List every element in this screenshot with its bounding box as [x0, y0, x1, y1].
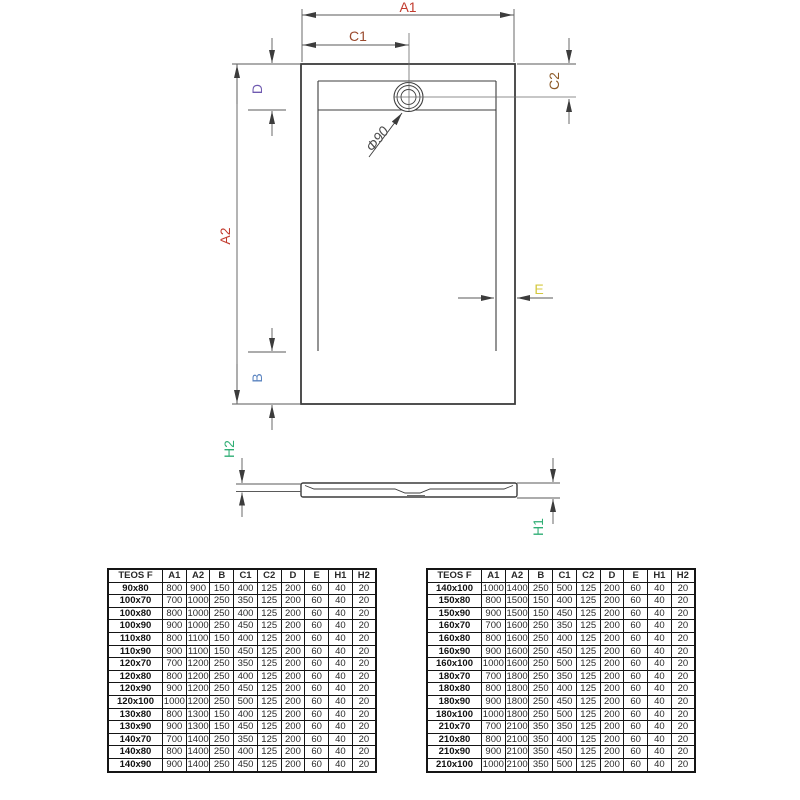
- size-cell: 150x80: [427, 595, 482, 608]
- dimension-cell: 500: [553, 582, 577, 595]
- size-cell: 210x90: [427, 746, 482, 759]
- dimension-cell: 60: [305, 746, 329, 759]
- dimension-cell: 800: [482, 595, 506, 608]
- shower-tray-technical-drawing: A1 C1 C2 D A2 B E H2 H1 Φ90: [0, 0, 800, 560]
- size-cell: 150x90: [427, 607, 482, 620]
- dimension-cell: 200: [600, 595, 624, 608]
- table-row: 210x909002100350450125200604020: [427, 746, 695, 759]
- dimension-cell: 20: [352, 746, 376, 759]
- table-row: 110x909001100150450125200604020: [108, 645, 376, 658]
- dimension-cell: 20: [671, 733, 695, 746]
- size-cell: 100x80: [108, 607, 163, 620]
- size-cell: 160x100: [427, 658, 482, 671]
- size-cell: 110x90: [108, 645, 163, 658]
- dimension-cell: 450: [553, 746, 577, 759]
- table-row: 180x10010001800250500125200604020: [427, 708, 695, 721]
- dimension-cell: 60: [624, 746, 648, 759]
- column-header-a1: A1: [482, 569, 506, 582]
- dim-label-h1: H1: [530, 518, 546, 536]
- size-cell: 180x70: [427, 670, 482, 683]
- dimension-cell: 1100: [186, 632, 210, 645]
- dimension-cell: 20: [671, 695, 695, 708]
- dimension-cell: 1000: [482, 582, 506, 595]
- dimension-cell: 450: [553, 607, 577, 620]
- dimension-cell: 450: [234, 620, 258, 633]
- dimension-cell: 60: [305, 758, 329, 771]
- dimension-cell: 1000: [482, 758, 506, 771]
- dimension-cell: 1600: [505, 658, 529, 671]
- table-row: 100x909001000250450125200604020: [108, 620, 376, 633]
- size-cell: 160x90: [427, 645, 482, 658]
- dimension-cell: 40: [648, 708, 672, 721]
- dimension-cell: 40: [329, 721, 353, 734]
- column-header-c2: C2: [576, 569, 600, 582]
- dimension-cell: 350: [553, 721, 577, 734]
- dimension-cell: 60: [624, 595, 648, 608]
- dimension-cell: 60: [624, 582, 648, 595]
- dimension-cell: 60: [305, 708, 329, 721]
- size-cell: 130x90: [108, 721, 163, 734]
- dimension-cell: 60: [624, 632, 648, 645]
- dimension-cell: 1600: [505, 620, 529, 633]
- dimension-cell: 60: [305, 595, 329, 608]
- dimension-cell: 200: [281, 620, 305, 633]
- dimension-cell: 450: [234, 721, 258, 734]
- dimension-cell: 200: [281, 746, 305, 759]
- dimension-cell: 500: [553, 658, 577, 671]
- dimension-cell: 900: [482, 695, 506, 708]
- dimension-cell: 800: [163, 708, 187, 721]
- dimension-cell: 125: [257, 658, 281, 671]
- table-row: 160x909001600250450125200604020: [427, 645, 695, 658]
- dimension-cell: 200: [281, 645, 305, 658]
- table-row: 140x909001400250450125200604020: [108, 758, 376, 771]
- dimension-cell: 1000: [482, 658, 506, 671]
- size-cell: 130x80: [108, 708, 163, 721]
- size-cell: 180x90: [427, 695, 482, 708]
- table-row: 140x707001400250350125200604020: [108, 733, 376, 746]
- dimension-cell: 700: [482, 620, 506, 633]
- dimension-cell: 250: [529, 645, 553, 658]
- dimension-cell: 125: [576, 607, 600, 620]
- dimension-cell: 900: [163, 645, 187, 658]
- dimension-cell: 1600: [505, 645, 529, 658]
- dimension-cell: 60: [305, 683, 329, 696]
- dim-label-a2: A2: [217, 227, 233, 244]
- dimension-cell: 150: [210, 721, 234, 734]
- dimension-cell: 900: [163, 721, 187, 734]
- table-row: 120x909001200250450125200604020: [108, 683, 376, 696]
- dimension-cell: 250: [210, 758, 234, 771]
- dimension-cell: 200: [281, 658, 305, 671]
- size-cell: 210x80: [427, 733, 482, 746]
- dimension-cell: 60: [305, 721, 329, 734]
- dimension-cell: 200: [281, 721, 305, 734]
- dimension-cell: 20: [352, 721, 376, 734]
- dimension-cell: 125: [257, 746, 281, 759]
- size-cell: 120x90: [108, 683, 163, 696]
- dimension-cell: 1300: [186, 721, 210, 734]
- dimension-cell: 20: [352, 658, 376, 671]
- dimension-cell: 200: [281, 595, 305, 608]
- dimension-cell: 40: [329, 620, 353, 633]
- size-cell: 120x80: [108, 670, 163, 683]
- dimension-cell: 400: [553, 595, 577, 608]
- dimension-cell: 40: [329, 582, 353, 595]
- dimension-cell: 150: [210, 582, 234, 595]
- dimension-cell: 20: [671, 721, 695, 734]
- dimension-cell: 200: [600, 620, 624, 633]
- dimension-cell: 700: [163, 658, 187, 671]
- dim-label-c2: C2: [546, 72, 562, 90]
- dimension-cell: 60: [305, 607, 329, 620]
- dimension-cell: 125: [257, 708, 281, 721]
- dimension-cell: 125: [576, 582, 600, 595]
- dimension-cell: 40: [329, 632, 353, 645]
- dim-label-d: D: [249, 84, 265, 94]
- table-row: 100x707001000250350125200604020: [108, 595, 376, 608]
- dimension-cell: 1200: [186, 683, 210, 696]
- size-cell: 100x70: [108, 595, 163, 608]
- size-cell: 120x100: [108, 695, 163, 708]
- side-profile-outline: [301, 483, 517, 497]
- dimension-cell: 700: [163, 733, 187, 746]
- dimension-cell: 800: [482, 632, 506, 645]
- dimension-cell: 500: [553, 758, 577, 771]
- dimension-cell: 60: [624, 708, 648, 721]
- dimension-cell: 20: [352, 645, 376, 658]
- dimension-cell: 800: [163, 632, 187, 645]
- dimension-cell: 250: [210, 595, 234, 608]
- column-header-h2: H2: [352, 569, 376, 582]
- dimension-cell: 40: [648, 746, 672, 759]
- dimension-cell: 250: [529, 708, 553, 721]
- dimension-cell: 60: [624, 721, 648, 734]
- dimension-cell: 40: [648, 683, 672, 696]
- dimensions-table-right: TEOS FA1A2BC1C2DEH1H2140x100100014002505…: [426, 568, 696, 773]
- dimension-cell: 125: [257, 670, 281, 683]
- dimension-cell: 450: [234, 645, 258, 658]
- dimension-cell: 125: [576, 620, 600, 633]
- table-row: 130x909001300150450125200604020: [108, 721, 376, 734]
- dimension-cell: 20: [671, 670, 695, 683]
- dimension-cell: 250: [529, 658, 553, 671]
- table-row: 120x808001200250400125200604020: [108, 670, 376, 683]
- table-row: 210x707002100350350125200604020: [427, 721, 695, 734]
- dimension-cell: 150: [210, 632, 234, 645]
- dimension-cell: 800: [163, 746, 187, 759]
- dimension-cell: 1200: [186, 670, 210, 683]
- table-row: 180x909001800250450125200604020: [427, 695, 695, 708]
- dimension-cell: 250: [210, 695, 234, 708]
- dimension-cell: 20: [671, 758, 695, 771]
- dimension-cell: 2100: [505, 721, 529, 734]
- column-header-h2: H2: [671, 569, 695, 582]
- dimension-cell: 125: [576, 645, 600, 658]
- dimension-cell: 250: [210, 607, 234, 620]
- dimension-cell: 20: [671, 620, 695, 633]
- dimension-cell: 200: [600, 645, 624, 658]
- size-cell: 180x100: [427, 708, 482, 721]
- dimension-cell: 125: [257, 632, 281, 645]
- column-header-c1: C1: [553, 569, 577, 582]
- dimension-cell: 900: [163, 758, 187, 771]
- dimension-cell: 250: [210, 658, 234, 671]
- dimension-cell: 350: [234, 595, 258, 608]
- table-row: 160x808001600250400125200604020: [427, 632, 695, 645]
- dimension-cell: 60: [305, 582, 329, 595]
- dimension-cell: 20: [671, 746, 695, 759]
- table-row: 180x808001800250400125200604020: [427, 683, 695, 696]
- dimension-cell: 40: [648, 645, 672, 658]
- dimension-cell: 400: [553, 683, 577, 696]
- dimension-cell: 125: [257, 595, 281, 608]
- column-header-h1: H1: [329, 569, 353, 582]
- dimension-cell: 40: [648, 695, 672, 708]
- dimension-cell: 200: [600, 683, 624, 696]
- column-header-d: D: [281, 569, 305, 582]
- column-header-teos-f: TEOS F: [108, 569, 163, 582]
- table-row: 100x808001000250400125200604020: [108, 607, 376, 620]
- side-profile-inner-line: [305, 486, 513, 494]
- dim-label-a1: A1: [399, 0, 416, 15]
- dimension-cell: 20: [352, 582, 376, 595]
- size-cell: 210x70: [427, 721, 482, 734]
- dimension-cell: 800: [163, 607, 187, 620]
- table-row: 140x808001400250400125200604020: [108, 746, 376, 759]
- column-header-c1: C1: [234, 569, 258, 582]
- dimension-cell: 350: [234, 733, 258, 746]
- dimension-cell: 400: [234, 746, 258, 759]
- dimension-cell: 450: [553, 645, 577, 658]
- dimension-cell: 400: [234, 670, 258, 683]
- dimension-cell: 125: [576, 595, 600, 608]
- size-cell: 210x100: [427, 758, 482, 771]
- table-row: 210x808002100350400125200604020: [427, 733, 695, 746]
- dimension-cell: 400: [234, 607, 258, 620]
- dimension-cell: 250: [529, 670, 553, 683]
- size-cell: 160x70: [427, 620, 482, 633]
- dimension-cell: 200: [600, 746, 624, 759]
- dimension-cell: 250: [210, 733, 234, 746]
- dimension-cell: 40: [648, 620, 672, 633]
- dimension-cell: 125: [576, 708, 600, 721]
- dimension-cell: 60: [624, 683, 648, 696]
- table-row: 110x808001100150400125200604020: [108, 632, 376, 645]
- dimension-cell: 450: [553, 695, 577, 708]
- dimension-cell: 1500: [505, 595, 529, 608]
- dimension-cell: 250: [529, 632, 553, 645]
- dimension-cell: 900: [482, 645, 506, 658]
- dimension-cell: 250: [210, 620, 234, 633]
- dimension-cell: 60: [305, 632, 329, 645]
- dimension-cell: 60: [305, 620, 329, 633]
- column-header-b: B: [529, 569, 553, 582]
- dimension-cell: 60: [624, 620, 648, 633]
- dimension-cell: 1500: [505, 607, 529, 620]
- dimension-cell: 400: [553, 733, 577, 746]
- column-header-d: D: [600, 569, 624, 582]
- table-row: 210x10010002100350500125200604020: [427, 758, 695, 771]
- dimension-cell: 125: [257, 683, 281, 696]
- dimension-cell: 250: [529, 620, 553, 633]
- dimension-cell: 40: [329, 595, 353, 608]
- dimension-cell: 200: [281, 733, 305, 746]
- dimension-cell: 125: [576, 683, 600, 696]
- dimension-cell: 800: [482, 733, 506, 746]
- dimension-cell: 1400: [186, 746, 210, 759]
- dimension-cell: 150: [210, 645, 234, 658]
- dimension-cell: 450: [234, 758, 258, 771]
- column-header-e: E: [624, 569, 648, 582]
- dimension-cell: 2100: [505, 733, 529, 746]
- dimension-cell: 350: [529, 746, 553, 759]
- dimension-cell: 125: [257, 721, 281, 734]
- dimension-cell: 800: [163, 582, 187, 595]
- column-header-a2: A2: [186, 569, 210, 582]
- dimension-cell: 60: [624, 658, 648, 671]
- dimension-cell: 900: [186, 582, 210, 595]
- dimension-cell: 200: [600, 695, 624, 708]
- dimension-cell: 40: [329, 658, 353, 671]
- dimensions-table-left: TEOS FA1A2BC1C2DEH1H290x8080090015040012…: [107, 568, 377, 773]
- dimension-cell: 1400: [505, 582, 529, 595]
- dimension-cell: 250: [529, 683, 553, 696]
- dimension-cell: 200: [281, 670, 305, 683]
- dimension-cell: 40: [648, 758, 672, 771]
- dimension-cell: 200: [281, 582, 305, 595]
- dimension-cell: 150: [529, 607, 553, 620]
- dimension-cell: 60: [624, 645, 648, 658]
- dimension-cell: 350: [553, 620, 577, 633]
- dimension-cell: 900: [163, 620, 187, 633]
- table-row: 90x80800900150400125200604020: [108, 582, 376, 595]
- dimension-cell: 200: [600, 758, 624, 771]
- dimension-cell: 20: [671, 645, 695, 658]
- size-cell: 120x70: [108, 658, 163, 671]
- dimension-cell: 1800: [505, 708, 529, 721]
- dimension-cell: 60: [624, 695, 648, 708]
- dimension-cell: 20: [352, 733, 376, 746]
- dimension-cell: 40: [648, 595, 672, 608]
- dimension-cell: 800: [482, 683, 506, 696]
- dimension-cell: 60: [305, 670, 329, 683]
- dimension-cell: 350: [529, 733, 553, 746]
- dimension-cell: 200: [600, 607, 624, 620]
- dimension-cell: 1000: [186, 607, 210, 620]
- dimension-cell: 1200: [186, 658, 210, 671]
- dimension-cell: 400: [234, 632, 258, 645]
- dimension-cell: 20: [671, 658, 695, 671]
- dimension-cell: 20: [352, 632, 376, 645]
- dimension-cell: 350: [553, 670, 577, 683]
- dimension-cell: 125: [576, 670, 600, 683]
- dimension-cell: 60: [305, 733, 329, 746]
- dimension-cell: 125: [576, 632, 600, 645]
- dimension-cell: 40: [329, 670, 353, 683]
- dimension-cell: 200: [600, 658, 624, 671]
- size-cell: 100x90: [108, 620, 163, 633]
- dimension-cell: 40: [648, 733, 672, 746]
- table-row: 150x808001500150400125200604020: [427, 595, 695, 608]
- size-cell: 140x90: [108, 758, 163, 771]
- dimension-cell: 900: [482, 746, 506, 759]
- dimension-cell: 200: [281, 607, 305, 620]
- dimension-cell: 125: [576, 721, 600, 734]
- dimension-cell: 1600: [505, 632, 529, 645]
- dimension-cell: 40: [648, 607, 672, 620]
- dimension-cell: 1400: [186, 733, 210, 746]
- dimension-cell: 250: [210, 683, 234, 696]
- header-row: TEOS FA1A2BC1C2DEH1H2: [108, 569, 376, 582]
- side-view: [301, 483, 517, 497]
- dimension-cell: 450: [234, 683, 258, 696]
- drain-diameter-label: Φ90: [362, 123, 392, 155]
- dimension-cell: 125: [257, 695, 281, 708]
- dimension-cell: 40: [329, 746, 353, 759]
- dimension-cell: 125: [576, 758, 600, 771]
- column-header-h1: H1: [648, 569, 672, 582]
- dimension-cell: 250: [529, 695, 553, 708]
- dimension-cell: 20: [352, 695, 376, 708]
- dimension-cell: 700: [163, 595, 187, 608]
- dimension-cell: 200: [281, 632, 305, 645]
- dimension-cell: 200: [600, 670, 624, 683]
- dimension-cell: 200: [281, 695, 305, 708]
- table-row: 160x707001600250350125200604020: [427, 620, 695, 633]
- dimension-cell: 400: [234, 582, 258, 595]
- dimension-cell: 40: [648, 670, 672, 683]
- dimension-cell: 20: [352, 620, 376, 633]
- table-row: 140x10010001400250500125200604020: [427, 582, 695, 595]
- column-header-a1: A1: [163, 569, 187, 582]
- dimension-cell: 1100: [186, 645, 210, 658]
- dimension-cell: 350: [529, 721, 553, 734]
- dimension-cell: 125: [257, 582, 281, 595]
- dimension-cell: 500: [553, 708, 577, 721]
- dimension-cell: 1000: [482, 708, 506, 721]
- dimension-cell: 40: [329, 708, 353, 721]
- column-header-e: E: [305, 569, 329, 582]
- dimension-cell: 60: [624, 733, 648, 746]
- dimension-cell: 800: [163, 670, 187, 683]
- dimension-cell: 60: [624, 758, 648, 771]
- dimension-cell: 20: [671, 582, 695, 595]
- dimension-cell: 2100: [505, 758, 529, 771]
- dimension-cell: 20: [352, 607, 376, 620]
- dimension-cell: 125: [576, 746, 600, 759]
- dimension-cell: 20: [352, 595, 376, 608]
- dimension-cell: 40: [329, 645, 353, 658]
- dimension-cell: 125: [257, 733, 281, 746]
- table-row: 160x10010001600250500125200604020: [427, 658, 695, 671]
- dimension-cell: 1800: [505, 683, 529, 696]
- dimension-cell: 200: [600, 632, 624, 645]
- size-cell: 140x80: [108, 746, 163, 759]
- dimension-cell: 20: [671, 632, 695, 645]
- table-row: 150x909001500150450125200604020: [427, 607, 695, 620]
- dim-label-h2: H2: [221, 440, 237, 458]
- dimension-cell: 700: [482, 670, 506, 683]
- dim-label-e: E: [534, 281, 543, 297]
- size-cell: 140x100: [427, 582, 482, 595]
- dimension-cell: 20: [671, 595, 695, 608]
- dimension-cell: 1200: [186, 695, 210, 708]
- dimension-cell: 40: [648, 658, 672, 671]
- dimension-cell: 200: [600, 582, 624, 595]
- dimension-cell: 350: [529, 758, 553, 771]
- dimension-cell: 200: [281, 708, 305, 721]
